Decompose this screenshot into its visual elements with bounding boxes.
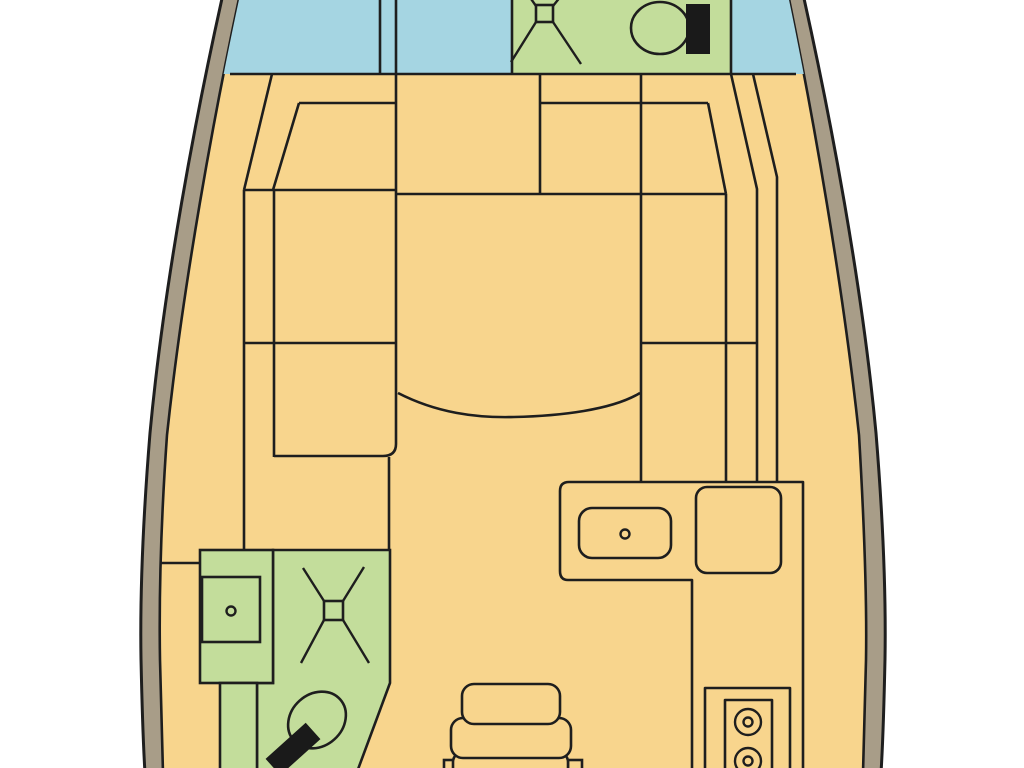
head-sink xyxy=(202,577,260,642)
companionway-steps xyxy=(444,684,582,768)
boat-floorplan xyxy=(0,0,1024,768)
bow-berth xyxy=(150,0,866,74)
aft-head xyxy=(200,550,390,768)
galley-sink xyxy=(579,508,671,558)
step-top xyxy=(462,684,560,724)
floorplan-svg xyxy=(0,0,1024,768)
bow-toilet-icon xyxy=(631,2,710,54)
galley-appliance xyxy=(696,487,781,573)
head-corridor xyxy=(220,683,257,768)
